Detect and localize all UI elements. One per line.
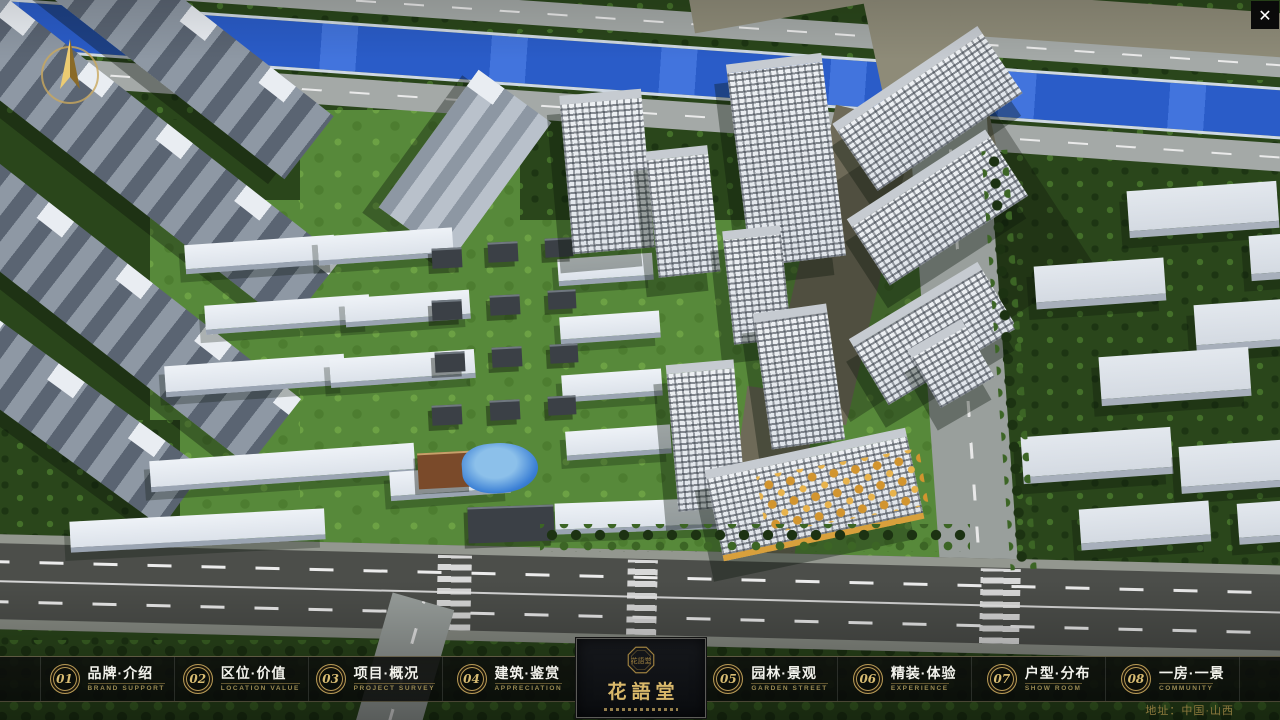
nav-number-badge: 07 (987, 664, 1017, 694)
nav-number-badge: 01 (50, 664, 80, 694)
courtyard-house (491, 346, 522, 368)
nav-number-badge: 02 (183, 664, 213, 694)
nav-item-views[interactable]: 08 一房·一景 COMMUNITY (1106, 657, 1239, 701)
nav-item-architecture[interactable]: 04 建筑·鉴赏 APPRECIATION (443, 657, 577, 701)
courtyard-house (548, 289, 577, 309)
close-icon: ✕ (1258, 6, 1271, 25)
nav-label-zh: 户型·分布 (1025, 666, 1091, 680)
street-trees-north (540, 524, 970, 552)
nav-item-garden[interactable]: 05 园林·景观 GARDEN STREET (704, 657, 838, 701)
nav-label-en: APPRECIATION (495, 683, 563, 693)
warehouse-row (1237, 496, 1280, 545)
nav-number-badge: 05 (713, 664, 743, 694)
courtyard-house (431, 299, 462, 321)
nav-label-zh: 一房·一景 (1159, 666, 1225, 680)
project-logo-title: 花語堂 (602, 677, 679, 704)
nav-item-floorplan[interactable]: 07 户型·分布 SHOW ROOM (972, 657, 1106, 701)
courtyard-house (545, 237, 574, 257)
courtyard-house (431, 247, 462, 269)
courtyard-house (548, 395, 577, 415)
nav-label-zh: 品牌·介绍 (88, 666, 154, 680)
svg-text:花語堂: 花語堂 (631, 656, 652, 665)
nav-label-en: EXPERIENCE (891, 683, 949, 693)
nav-label-zh: 园林·景观 (751, 666, 817, 680)
nav-label-zh: 项目·概况 (354, 666, 420, 680)
nav-number-badge: 03 (316, 664, 346, 694)
masterplan-viewport[interactable]: ✕ 01 品牌·介绍 BRAND SUPPORT 02 区位·价值 LOCATI… (0, 0, 1280, 720)
nav-label-zh: 精装·体验 (891, 666, 957, 680)
crosswalk (979, 568, 1021, 644)
nav-number-badge: 04 (457, 664, 487, 694)
warehouse-row (1249, 228, 1280, 281)
nav-label-en: LOCATION VALUE (221, 683, 300, 693)
warehouse-row (1194, 295, 1280, 352)
project-address: 地址：中国·山西 (1145, 702, 1234, 718)
nav-label-en: GARDEN STREET (751, 683, 827, 693)
nav-label-en: SHOW ROOM (1025, 683, 1082, 693)
logo-subtext-decoration (604, 708, 678, 711)
nav-label-zh: 建筑·鉴赏 (495, 666, 561, 680)
residential-tower (559, 89, 655, 255)
compass-north-icon (33, 33, 107, 116)
warehouse-row (1098, 347, 1251, 406)
navbar-left-cap (0, 657, 41, 701)
nav-label-en: BRAND SUPPORT (88, 683, 166, 693)
octagon-seal-icon: 花語堂 (626, 645, 656, 675)
nav-item-project[interactable]: 03 项目·概况 PROJECT SURVEY (309, 657, 443, 701)
nav-number-badge: 06 (853, 664, 883, 694)
courtyard-house (489, 399, 520, 421)
courtyard-house (434, 351, 465, 373)
residential-tower (646, 145, 721, 278)
warehouse-row (1179, 437, 1280, 494)
nav-label-en: PROJECT SURVEY (354, 683, 436, 693)
nav-item-location[interactable]: 02 区位·价值 LOCATION VALUE (175, 657, 309, 701)
courtyard-house (550, 343, 579, 363)
warehouse-row (1034, 258, 1167, 310)
crosswalk (626, 560, 658, 636)
courtyard-house (487, 241, 518, 263)
nav-label-en: COMMUNITY (1159, 683, 1213, 693)
courtyard-house (431, 404, 462, 426)
project-logo[interactable]: 花語堂 花語堂 (576, 638, 706, 718)
close-button[interactable]: ✕ (1251, 1, 1279, 29)
nav-item-brand[interactable]: 01 品牌·介绍 BRAND SUPPORT (41, 657, 175, 701)
nav-label-zh: 区位·价值 (221, 666, 287, 680)
nav-item-interior[interactable]: 06 精装·体验 EXPERIENCE (838, 657, 972, 701)
nav-number-badge: 08 (1121, 664, 1151, 694)
courtyard-house (489, 294, 520, 316)
navbar-right-cap (1239, 657, 1280, 701)
